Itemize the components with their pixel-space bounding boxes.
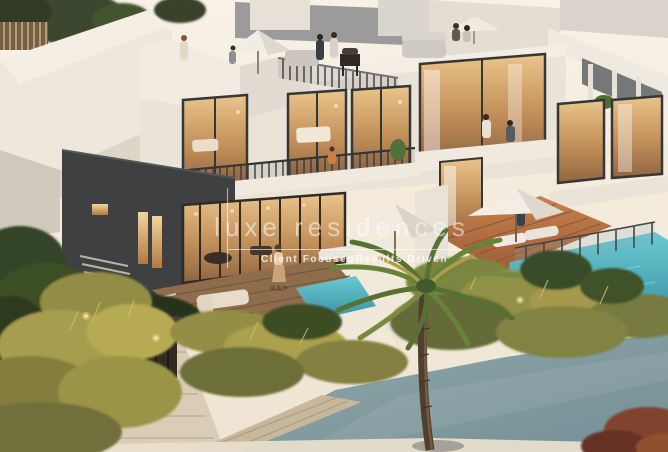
villa-render-image: luxe residences Client Focused Results D… (0, 0, 668, 452)
watermark-wordmark: luxe residences (214, 212, 470, 242)
watermark-tagline-left: Client Focused (261, 254, 355, 265)
watermark-tagline-right: Results Driven (356, 254, 448, 265)
render-canvas: luxe residences Client Focused Results D… (0, 0, 668, 452)
